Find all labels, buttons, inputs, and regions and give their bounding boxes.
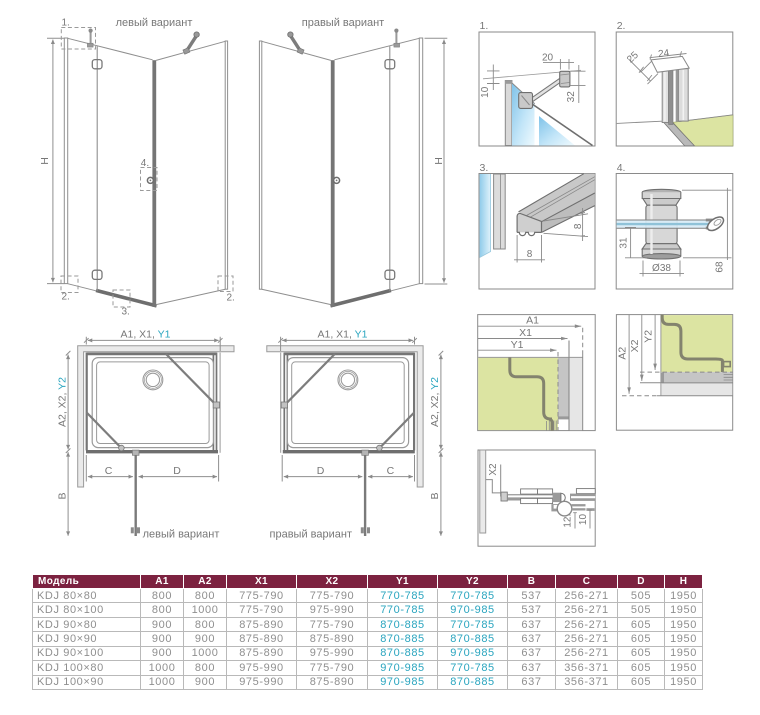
svg-text:Ø38: Ø38: [652, 263, 671, 274]
svg-text:A2, X2, Y2: A2, X2, Y2: [429, 377, 441, 427]
svg-text:10: 10: [578, 514, 589, 526]
svg-text:A1: A1: [526, 315, 539, 327]
svg-text:20: 20: [542, 52, 554, 63]
svg-text:8: 8: [573, 223, 584, 229]
svg-text:2.: 2.: [62, 292, 70, 303]
svg-text:правый вариант: правый вариант: [302, 17, 384, 29]
svg-text:X2: X2: [488, 463, 499, 476]
svg-text:12.: 12.: [562, 514, 573, 528]
svg-text:3.: 3.: [480, 162, 489, 174]
svg-text:Y2: Y2: [642, 330, 654, 343]
svg-text:B: B: [57, 492, 69, 499]
svg-text:A2: A2: [617, 347, 629, 360]
svg-text:Y1: Y1: [511, 339, 524, 351]
svg-text:X1: X1: [519, 327, 532, 339]
svg-text:8: 8: [527, 249, 533, 260]
svg-text:A2, X2, Y2: A2, X2, Y2: [57, 377, 69, 427]
svg-text:A1, X1, Y1: A1, X1, Y1: [120, 329, 170, 341]
svg-text:D: D: [173, 465, 181, 477]
svg-text:32: 32: [566, 91, 577, 103]
svg-text:H: H: [39, 157, 51, 165]
svg-text:1.: 1.: [480, 20, 489, 32]
svg-text:1.: 1.: [62, 18, 70, 29]
svg-text:24: 24: [658, 48, 671, 60]
svg-text:C: C: [387, 465, 395, 477]
svg-text:D: D: [317, 465, 325, 477]
svg-text:68: 68: [715, 261, 726, 273]
svg-text:левый вариант: левый вариант: [116, 17, 193, 29]
svg-text:левый вариант: левый вариант: [143, 529, 220, 541]
svg-text:B: B: [429, 492, 441, 499]
svg-text:A1, X1, Y1: A1, X1, Y1: [317, 329, 367, 341]
svg-text:2.: 2.: [617, 20, 626, 32]
svg-text:3.: 3.: [122, 307, 130, 318]
svg-text:2.: 2.: [227, 293, 235, 304]
svg-text:C: C: [105, 465, 113, 477]
svg-text:правый вариант: правый вариант: [270, 529, 352, 541]
svg-text:4.: 4.: [141, 158, 149, 169]
svg-text:4.: 4.: [617, 162, 626, 174]
svg-text:H: H: [433, 157, 445, 165]
svg-text:31: 31: [619, 237, 630, 249]
svg-text:10: 10: [480, 86, 491, 98]
svg-text:25: 25: [625, 50, 641, 66]
svg-text:X2: X2: [629, 339, 641, 352]
